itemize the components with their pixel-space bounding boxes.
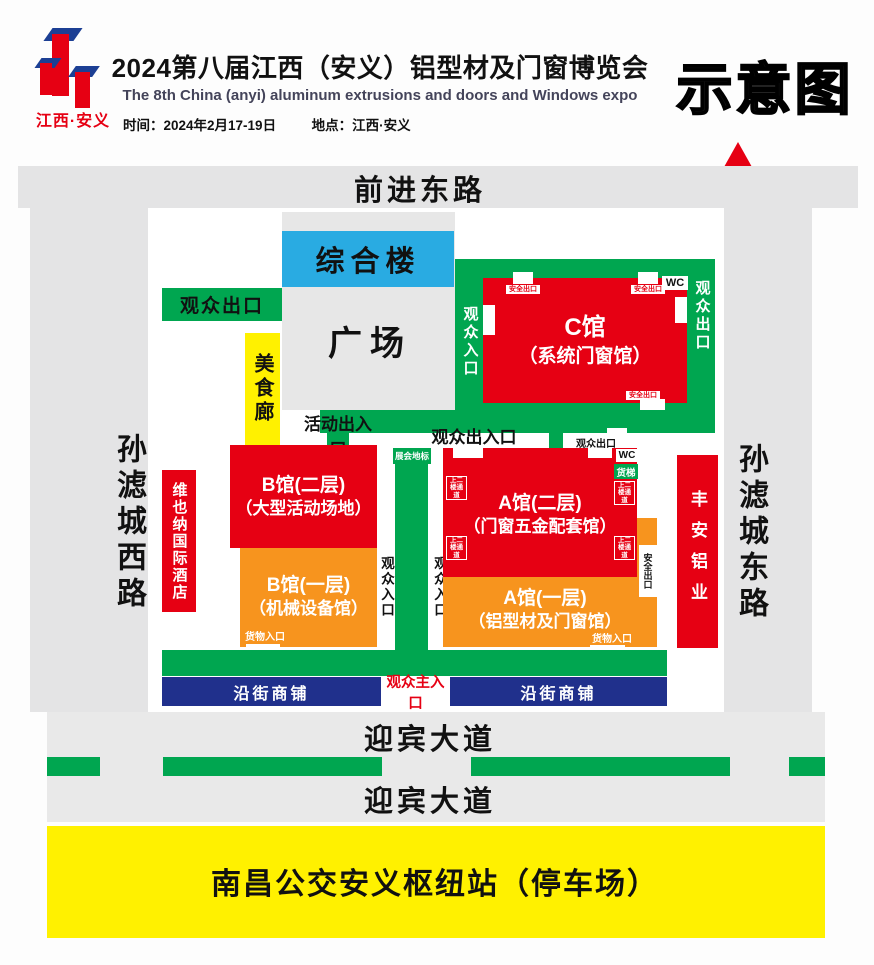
logo-pillar-small (40, 63, 52, 95)
exit-northwest: 观众出口 (162, 288, 282, 321)
hall-a2-door (588, 448, 612, 458)
avenue-median-strip (163, 757, 382, 776)
activity-gate-label: 活动出入口 (296, 426, 380, 444)
hall-a2-desc: （门窗五金配套馆） (464, 516, 617, 539)
place-label: 地点： (312, 118, 353, 133)
schematic-tag: 示意图 (665, 50, 865, 120)
expo-site-map: 江西·安义 2024第八届江西（安义）铝型材及门窗博览会 The 8th Chi… (0, 0, 874, 965)
central-entry-label-west: 观众入口 (377, 554, 395, 620)
street-shops-west: 沿街商铺 (162, 677, 381, 706)
visitor-gate-label: 观众出入口 (431, 426, 517, 444)
expo-info-line: 时间：2024年2月17-19日 地点：江西·安义 (123, 114, 643, 134)
hall-c-door (638, 272, 658, 284)
safety-exit-sign: 安全出口 (506, 285, 540, 294)
hall-a2-door (453, 448, 483, 458)
stairs-passage-sign: 上二楼通道 (614, 536, 635, 560)
expo-title: 2024第八届江西（安义）铝型材及门窗博览会 (110, 50, 650, 82)
hall-c-label: C馆 （系统门窗馆） (483, 308, 687, 374)
time-label: 时间： (123, 118, 164, 133)
avenue-yingbin-label-lower: 迎宾大道 (320, 782, 540, 816)
avenue-yingbin-label-upper: 迎宾大道 (320, 720, 540, 754)
time-value: 2024年2月17-19日 (164, 118, 277, 133)
hall-b2-name: B馆(二层) (262, 473, 345, 499)
walkway-stub (549, 433, 563, 449)
hall-c-door (513, 272, 533, 284)
goods-entry-label-b: 货物入口 (243, 629, 287, 642)
wc-sign-hall-a: WC (616, 449, 638, 462)
stairs-passage-sign: 上二楼通道 (446, 476, 467, 500)
hall-b1-name: B馆(一层) (267, 573, 350, 599)
vienna-hotel: 维也纳国际酒店 (162, 470, 196, 612)
hall-b2-label: B馆(二层) （大型活动场地） (230, 468, 377, 526)
central-walkway (395, 464, 428, 652)
safety-exit-sign: 安全出口 (631, 285, 665, 294)
visitor-exit-small-label: 观众出口 (573, 436, 619, 448)
hall-b2-desc: （大型活动场地） (236, 498, 372, 521)
avenue-median-strip (789, 757, 825, 776)
bus-hub-parking-label: 南昌公交安义枢纽站（停车场） (160, 862, 710, 900)
hall-a1-name: A馆(一层) (503, 586, 586, 612)
logo-text: 江西·安义 (18, 108, 128, 130)
hall-c-name: C馆 (564, 312, 605, 344)
freight-lift-sign: 货梯 (614, 464, 638, 479)
fengan-aluminum: 丰安铝业 (677, 455, 718, 648)
hall-a2-name: A馆(二层) (498, 491, 581, 517)
stairs-passage-sign: 上二楼通道 (446, 536, 467, 560)
hall-a2-label: A馆(二层) （门窗五金配套馆） (453, 487, 627, 543)
hall-c-entry-strip-label: 观众入口 (458, 292, 482, 392)
hall-c-door (483, 305, 495, 335)
hall-c-door (675, 297, 687, 323)
place-value: 江西·安义 (352, 118, 411, 133)
expo-subtitle: The 8th China (anyi) aluminum extrusions… (110, 84, 650, 106)
hall-c-desc: （系统门窗馆） (518, 344, 651, 370)
logo-pillar-mid (75, 72, 90, 108)
wc-sign-hall-c: WC (662, 276, 688, 290)
landmark-marker: 展会地标 (393, 448, 431, 464)
road-sunlvcheng-east-label: 孙滤城东路 (730, 368, 770, 698)
hall-c-exit-strip-label: 观众出口 (690, 270, 714, 362)
avenue-median-strip (471, 757, 730, 776)
hall-b1-label: B馆(一层) （机械设备馆） (240, 568, 377, 626)
safety-exit-vertical-label: 安全出口 (640, 548, 656, 594)
safety-exit-sign: 安全出口 (626, 391, 660, 400)
avenue-median-strip (47, 757, 100, 776)
hall-b1-desc: （机械设备馆） (249, 598, 368, 621)
stairs-passage-sign: 上二楼通道 (614, 481, 635, 505)
road-qianjin-east-label: 前进东路 (310, 170, 530, 206)
street-shops-east: 沿街商铺 (450, 677, 667, 706)
main-visitor-entry: 观众主入口 (381, 677, 450, 706)
complex-building: 综合楼 (282, 231, 454, 287)
plaza-label: 广场 (315, 320, 425, 360)
road-sunlvcheng-west-label: 孙滤城西路 (108, 358, 148, 688)
food-corridor: 美食廊 (245, 333, 280, 445)
goods-entry-label-a: 货物入口 (588, 631, 636, 644)
